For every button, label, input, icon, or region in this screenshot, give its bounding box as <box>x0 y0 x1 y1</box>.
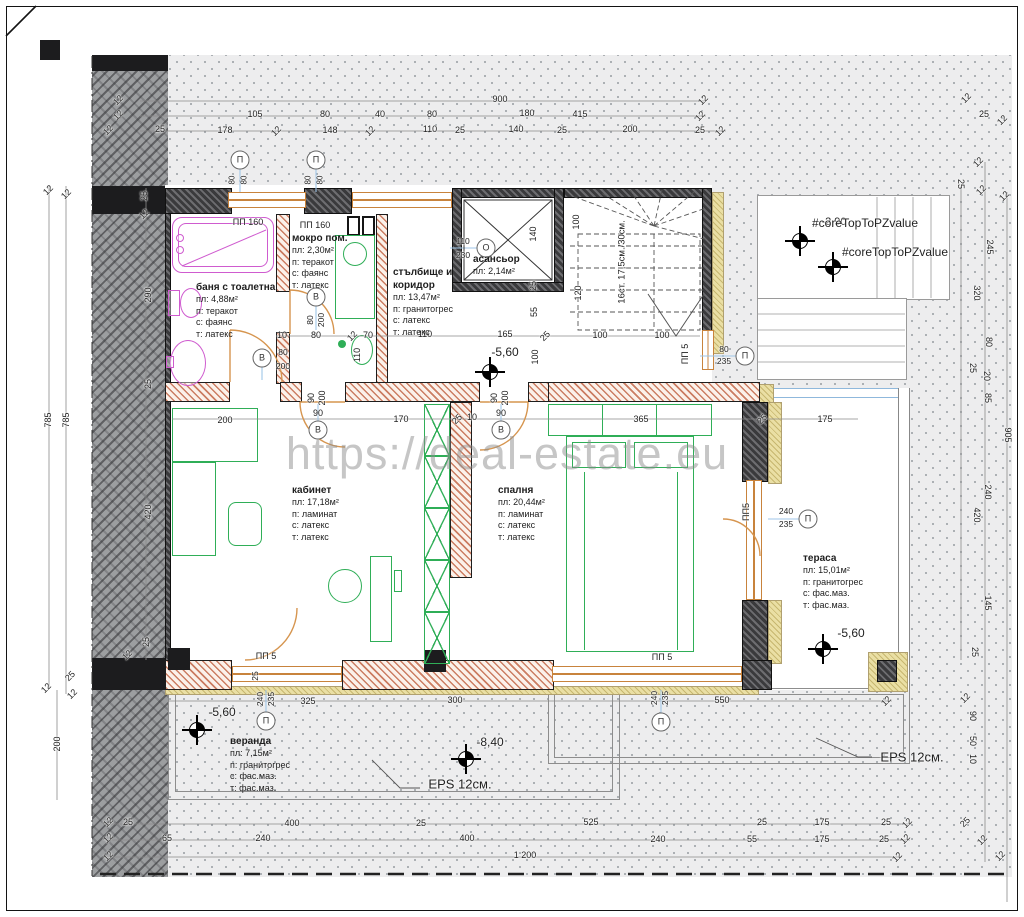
watermark: https://deal-estate.eu <box>262 428 752 480</box>
floor-plan-canvas: 1290012121058040801804151212251781214812… <box>0 0 1024 917</box>
